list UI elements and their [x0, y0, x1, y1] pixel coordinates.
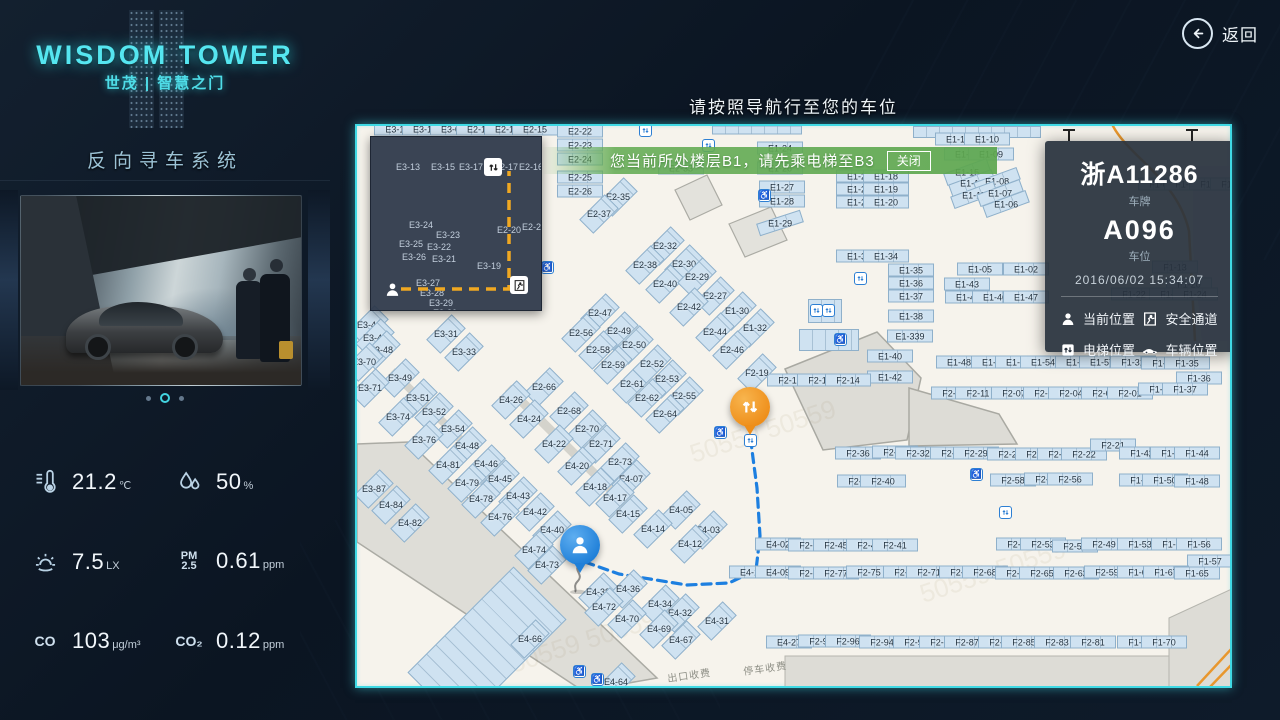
legend-label: 车辆位置 — [1166, 340, 1218, 359]
legend-item: 安全通道 — [1142, 309, 1225, 328]
co2-label: CO₂ — [172, 633, 206, 649]
person-icon — [383, 280, 401, 298]
elevator-icon — [639, 124, 652, 137]
sensor-unit: LX — [106, 560, 119, 575]
sensor-illuminance: 7.5LX — [28, 548, 120, 575]
divider — [1061, 296, 1218, 297]
carousel-dots — [0, 393, 330, 403]
sensor-unit: ppm — [263, 639, 284, 654]
carousel-photo — [20, 195, 302, 386]
carousel-dot[interactable] — [146, 396, 151, 401]
sensor-pm2_5: PM2.50.61ppm — [172, 548, 284, 574]
legend-label: 电梯位置 — [1083, 340, 1135, 359]
exit-icon — [1142, 310, 1159, 327]
elevator-icon — [999, 506, 1012, 519]
route-overview-minimap: E3-13E3-15E3-17E2-17E2-16E3-24E3-23E3-25… — [370, 136, 542, 311]
person-icon — [1059, 310, 1076, 327]
entry-timestamp: 2016/06/02 15:34:07 — [1045, 273, 1232, 287]
sensor-co: CO103μg/m³ — [28, 628, 141, 654]
accessible-icon: ♿ — [541, 261, 554, 274]
parking-map: E3-11E3-16E3-07E2-13E2-14E2-15E2-22E2-23… — [355, 124, 1232, 688]
legend-label: 当前位置 — [1083, 309, 1135, 328]
elevator-icon — [822, 304, 835, 317]
license-plate-label: 车牌 — [1045, 193, 1232, 209]
banner-close-button[interactable]: 关闭 — [887, 151, 931, 171]
droplets-icon — [172, 468, 206, 495]
sensor-value: 50 — [216, 469, 241, 495]
divider — [0, 180, 330, 181]
elevator-icon — [1059, 341, 1076, 358]
sensor-temperature: 21.2℃ — [28, 468, 131, 495]
sensor-value: 21.2 — [72, 469, 117, 495]
legend-item: 当前位置 — [1059, 309, 1142, 328]
accessible-icon: ♿ — [714, 426, 727, 439]
co-label: CO — [28, 633, 62, 649]
thermometer-icon — [28, 468, 62, 495]
sensor-value: 103 — [72, 628, 110, 654]
sensor-value: 7.5 — [72, 549, 104, 575]
decorative-pillar — [0, 190, 18, 390]
license-plate: 浙A11286 — [1045, 155, 1232, 191]
parking-guidance-screen: WISDOM TOWER 世茂 | 智慧之门 反向寻车系统 21.2℃50%7.… — [0, 0, 1280, 720]
sensor-unit: μg/m³ — [112, 639, 140, 654]
elevator-pin — [730, 387, 770, 427]
sensor-unit: ℃ — [119, 479, 131, 495]
elevator-icon — [484, 158, 502, 176]
legend-item: 电梯位置 — [1059, 340, 1142, 359]
back-label: 返回 — [1222, 21, 1258, 46]
car-icon — [1142, 341, 1159, 358]
exit-icon — [510, 276, 528, 294]
accessible-icon: ♿ — [591, 673, 604, 686]
photo-ceiling — [71, 196, 301, 275]
legend-item: 车辆位置 — [1142, 340, 1225, 359]
legend-label: 安全通道 — [1166, 309, 1218, 328]
photo-person — [236, 281, 262, 359]
decorative-pillar — [308, 190, 330, 390]
vehicle-info-panel: 浙A11286 车牌 A096 车位 2016/06/02 15:34:07 当… — [1045, 141, 1232, 352]
brightness-icon — [28, 548, 62, 575]
minimap-route — [401, 171, 509, 289]
pm25-label: PM2.5 — [172, 551, 206, 571]
sensor-unit: % — [243, 480, 253, 495]
elevator-icon — [854, 272, 867, 285]
floor-notice-banner: 您当前所处楼层B1，请先乘电梯至B3 关闭 — [542, 147, 997, 174]
back-arrow-icon — [1182, 18, 1213, 49]
accessible-icon: ♿ — [970, 468, 983, 481]
elevator-icon — [744, 434, 757, 447]
map-legend: 当前位置安全通道电梯位置车辆位置 — [1059, 309, 1224, 359]
accessible-icon: ♿ — [834, 333, 847, 346]
navigation-instruction: 请按照导航行至您的车位 — [355, 93, 1232, 118]
current-location-pin — [560, 525, 600, 565]
back-button[interactable]: 返回 — [1182, 18, 1258, 49]
carousel-dot[interactable] — [179, 396, 184, 401]
photo-person-head — [270, 259, 283, 272]
photo-person-head — [243, 268, 256, 281]
sensor-value: 0.12 — [216, 628, 261, 654]
brand-title: WISDOM TOWER — [0, 40, 330, 71]
photo-briefcase — [279, 341, 293, 359]
floor-notice-text: 您当前所处楼层B1，请先乘电梯至B3 — [610, 150, 875, 171]
accessible-icon: ♿ — [573, 665, 586, 678]
parking-spot: A096 — [1045, 215, 1232, 246]
sensor-value: 0.61 — [216, 548, 261, 574]
brand-subtitle: 世茂 | 智慧之门 — [0, 72, 330, 93]
sensor-co2: CO₂0.12ppm — [172, 628, 284, 654]
carousel-dot[interactable] — [160, 393, 170, 403]
accessible-icon: ♿ — [758, 189, 771, 202]
system-name: 反向寻车系统 — [0, 146, 330, 173]
parking-spot-label: 车位 — [1045, 248, 1232, 264]
sensor-unit: ppm — [263, 559, 284, 574]
sensor-humidity: 50% — [172, 468, 253, 495]
